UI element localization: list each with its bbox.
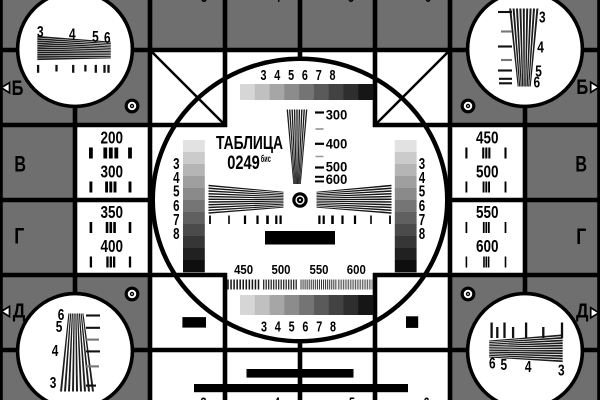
svg-text:5: 5 bbox=[56, 319, 63, 336]
svg-text:400: 400 bbox=[101, 236, 124, 256]
svg-text:200: 200 bbox=[101, 128, 124, 148]
svg-text:4: 4 bbox=[275, 319, 281, 336]
svg-text:4: 4 bbox=[52, 343, 59, 360]
svg-text:3: 3 bbox=[261, 67, 267, 84]
svg-text:550: 550 bbox=[310, 262, 329, 277]
svg-text:5: 5 bbox=[349, 394, 355, 400]
svg-text:4: 4 bbox=[69, 27, 76, 44]
svg-text:В: В bbox=[14, 151, 26, 176]
svg-text:450: 450 bbox=[476, 128, 499, 148]
svg-text:4: 4 bbox=[537, 40, 544, 57]
svg-text:400: 400 bbox=[326, 137, 348, 152]
svg-text:6: 6 bbox=[302, 67, 308, 84]
svg-text:Д: Д bbox=[576, 300, 589, 322]
svg-text:8: 8 bbox=[330, 319, 336, 336]
svg-text:4: 4 bbox=[274, 67, 280, 84]
svg-text:3: 3 bbox=[50, 375, 57, 392]
svg-text:Д: Д bbox=[13, 300, 26, 322]
svg-text:6: 6 bbox=[534, 75, 541, 92]
svg-text:600: 600 bbox=[326, 172, 348, 187]
svg-text:4: 4 bbox=[525, 359, 532, 376]
svg-text:3: 3 bbox=[37, 24, 44, 41]
svg-text:5: 5 bbox=[92, 29, 99, 46]
svg-text:8: 8 bbox=[173, 226, 180, 243]
svg-text:3: 3 bbox=[261, 319, 267, 336]
svg-text:7: 7 bbox=[316, 67, 322, 84]
svg-text:600: 600 bbox=[347, 262, 366, 277]
svg-text:6: 6 bbox=[104, 30, 111, 47]
svg-text:6: 6 bbox=[425, 0, 431, 6]
svg-text:Б: Б bbox=[576, 75, 588, 99]
svg-text:6: 6 bbox=[489, 355, 496, 372]
svg-text:бис: бис bbox=[261, 153, 271, 165]
svg-text:5: 5 bbox=[348, 0, 354, 6]
svg-text:3: 3 bbox=[201, 394, 207, 400]
svg-text:300: 300 bbox=[101, 162, 124, 182]
svg-text:6: 6 bbox=[424, 394, 430, 400]
svg-text:500: 500 bbox=[272, 262, 291, 277]
svg-text:550: 550 bbox=[476, 202, 499, 222]
svg-text:4: 4 bbox=[275, 0, 281, 6]
svg-text:5: 5 bbox=[288, 67, 294, 84]
svg-text:5: 5 bbox=[289, 319, 295, 336]
svg-text:450: 450 bbox=[234, 262, 253, 277]
svg-text:6: 6 bbox=[302, 319, 308, 336]
svg-text:ТАБЛИЦА: ТАБЛИЦА bbox=[216, 133, 283, 153]
svg-text:Г: Г bbox=[14, 224, 24, 249]
svg-text:600: 600 bbox=[476, 236, 499, 256]
svg-text:8: 8 bbox=[330, 67, 336, 84]
svg-text:Г: Г bbox=[576, 224, 586, 249]
svg-text:0249: 0249 bbox=[227, 152, 260, 174]
svg-text:В: В bbox=[575, 151, 587, 176]
svg-text:5: 5 bbox=[501, 357, 508, 374]
svg-text:3: 3 bbox=[539, 10, 546, 27]
svg-text:Б: Б bbox=[12, 76, 24, 100]
svg-text:350: 350 bbox=[101, 202, 124, 222]
svg-text:7: 7 bbox=[316, 319, 322, 336]
svg-text:3: 3 bbox=[201, 0, 207, 6]
svg-text:300: 300 bbox=[326, 108, 348, 123]
svg-text:3: 3 bbox=[558, 363, 565, 380]
svg-text:8: 8 bbox=[419, 226, 426, 243]
svg-text:4: 4 bbox=[274, 394, 280, 400]
svg-text:500: 500 bbox=[476, 162, 499, 182]
